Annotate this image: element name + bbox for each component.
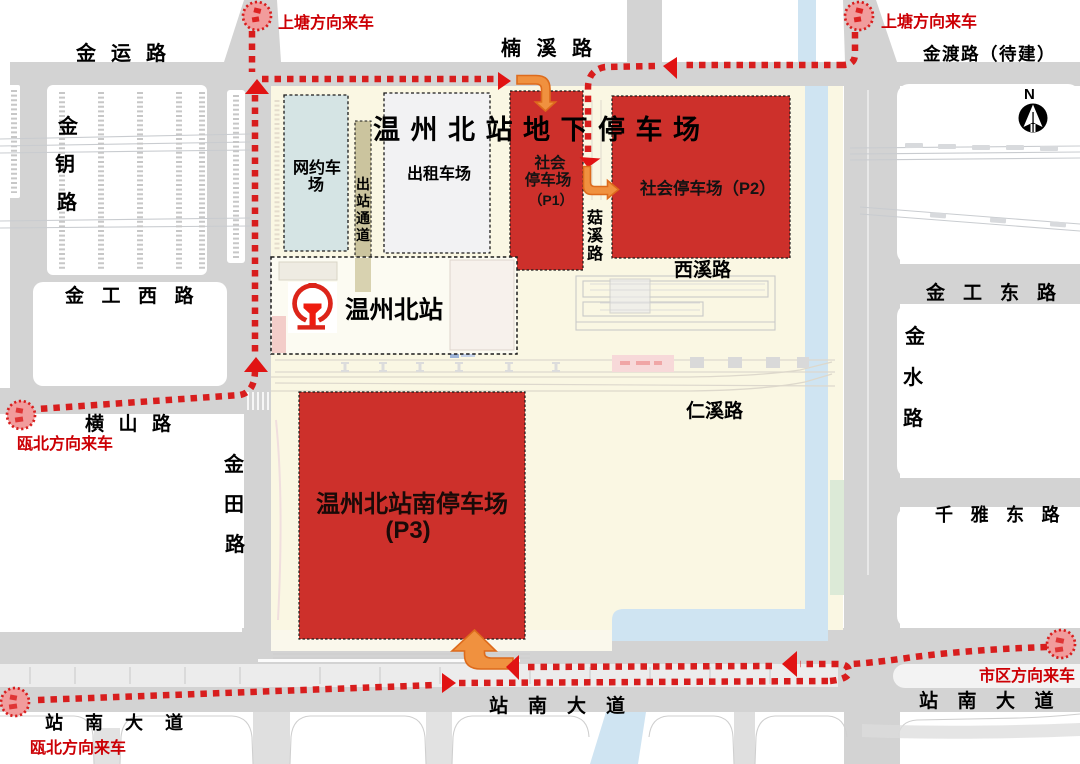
svg-text:温州北站: 温州北站 [345,296,443,324]
svg-text:通: 通 [356,210,370,226]
svg-text:横山路: 横山路 [85,412,186,435]
svg-text:社会: 社会 [533,153,566,172]
svg-text:楠溪路: 楠溪路 [501,36,608,60]
svg-text:路: 路 [587,244,604,263]
svg-text:道: 道 [356,227,370,243]
svg-text:站南大道: 站南大道 [45,712,205,733]
svg-text:溪: 溪 [587,226,604,245]
svg-text:(P3): (P3) [385,517,430,544]
svg-text:瓯北方向来车: 瓯北方向来车 [30,738,126,757]
svg-text:网约车: 网约车 [293,158,341,177]
svg-text:出租车场: 出租车场 [407,164,471,183]
svg-text:金工东路: 金工东路 [925,281,1074,304]
svg-text:金渡路（待建）: 金渡路（待建） [922,44,1056,64]
svg-text:站: 站 [356,193,370,209]
svg-text:上塘方向来车: 上塘方向来车 [881,12,977,31]
svg-text:站南大道: 站南大道 [919,689,1073,712]
svg-text:金运路: 金运路 [75,41,181,65]
svg-text:菇: 菇 [587,208,603,227]
svg-text:瓯北方向来车: 瓯北方向来车 [17,434,113,453]
svg-text:钥: 钥 [55,153,75,176]
svg-text:水: 水 [903,366,924,389]
svg-text:金工西路: 金工西路 [64,284,211,307]
svg-text:停车场: 停车场 [525,170,572,189]
svg-text:上塘方向来车: 上塘方向来车 [278,13,374,32]
svg-text:温州北站地下停车场: 温州北站地下停车场 [373,114,711,145]
svg-text:金: 金 [57,114,79,138]
svg-text:金: 金 [904,324,926,348]
svg-text:金: 金 [223,452,245,476]
svg-text:路: 路 [225,532,246,556]
svg-text:市区方向来车: 市区方向来车 [979,666,1075,685]
svg-text:路: 路 [903,406,924,430]
svg-text:社会停车场（P2）: 社会停车场（P2） [639,178,776,198]
svg-text:温州北站南停车场: 温州北站南停车场 [316,490,508,518]
svg-text:田: 田 [224,494,244,516]
svg-text:站南大道: 站南大道 [489,694,645,717]
svg-text:出: 出 [356,176,370,192]
svg-text:仁溪路: 仁溪路 [686,399,744,422]
svg-text:路: 路 [57,190,78,214]
svg-text:场: 场 [308,176,324,194]
svg-text:千雅东路: 千雅东路 [935,504,1077,525]
svg-text:西溪路: 西溪路 [674,258,732,281]
svg-text:（P1）: （P1） [528,192,573,208]
svg-text:N: N [1024,86,1035,103]
